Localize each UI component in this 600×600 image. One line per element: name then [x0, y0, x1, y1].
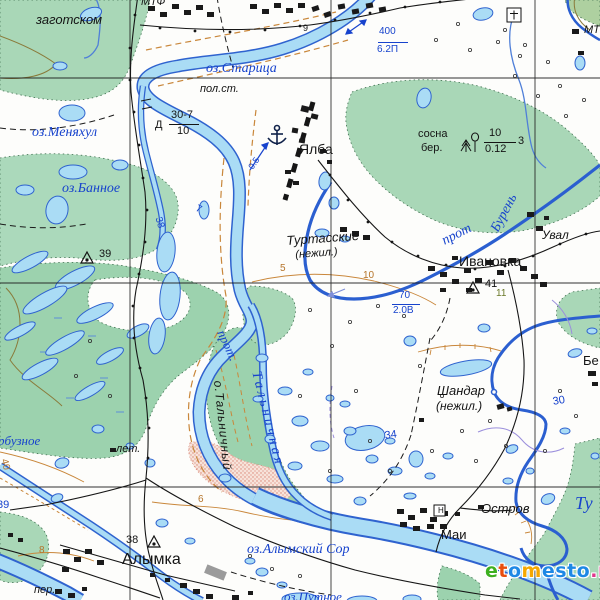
forest-top-left	[0, 0, 150, 101]
lake	[303, 369, 313, 375]
lake	[575, 56, 585, 70]
building	[68, 593, 75, 598]
bush-dot	[354, 389, 357, 392]
watermark-letter: o	[508, 560, 522, 582]
telegraph-pole-dot	[133, 337, 136, 340]
bush-dot	[518, 54, 521, 57]
lake	[425, 473, 435, 479]
building	[63, 549, 70, 554]
building	[440, 288, 446, 292]
bush-dot	[503, 28, 506, 31]
bush-dot	[348, 320, 351, 323]
building	[475, 278, 482, 283]
building	[8, 533, 13, 537]
bush-dot	[564, 114, 567, 117]
lake	[503, 478, 513, 484]
building	[408, 515, 415, 520]
green-bottom-center	[437, 566, 480, 600]
building	[232, 595, 239, 600]
lake	[315, 229, 329, 237]
lake	[219, 474, 231, 482]
bush-dot	[460, 429, 463, 432]
watermark-letter: o	[577, 560, 591, 582]
watermark-letter: e	[542, 560, 555, 582]
bush-dot	[270, 567, 273, 570]
telegraph-pole-dot	[391, 241, 394, 244]
building	[320, 149, 326, 153]
topographic-map[interactable]: оз.Старицаоз.Меняхулоз.БанноепротБуреньп…	[0, 0, 600, 600]
building	[486, 260, 493, 265]
building	[496, 403, 504, 410]
building	[531, 274, 538, 279]
building	[327, 160, 332, 164]
bush-dot	[298, 394, 301, 397]
map-canvas[interactable]	[0, 0, 600, 600]
building	[82, 587, 87, 591]
lake	[256, 568, 268, 576]
lake	[404, 493, 416, 499]
lake	[404, 336, 416, 346]
building	[509, 258, 516, 263]
building	[196, 5, 203, 10]
building	[428, 266, 435, 271]
watermark-letter: m	[522, 560, 542, 582]
telegraph-pole-dot	[138, 144, 141, 147]
building	[300, 105, 309, 113]
telegraph-pole-dot	[145, 397, 148, 400]
building	[110, 448, 116, 452]
building	[74, 557, 81, 562]
cemetery-icon	[507, 8, 521, 22]
bush-dot	[558, 84, 561, 87]
building	[452, 279, 459, 284]
lake	[591, 453, 599, 459]
building	[165, 578, 170, 582]
lake	[540, 492, 557, 507]
road-south	[144, 478, 163, 600]
telegraph-pole-dot	[264, 29, 267, 32]
bush-dot	[248, 554, 251, 557]
bush-dot	[376, 304, 379, 307]
building	[478, 505, 484, 509]
building	[340, 227, 347, 232]
telegraph-pole-dot	[585, 233, 588, 236]
building	[285, 170, 291, 174]
watermark-letter: e	[485, 560, 498, 582]
telegraph-pole-dot	[147, 457, 150, 460]
telegraph-pole-dot	[504, 265, 507, 268]
telegraph-pole-dot	[138, 273, 141, 276]
building	[413, 526, 420, 531]
building	[419, 418, 424, 422]
lake	[282, 593, 318, 600]
building	[293, 181, 299, 185]
building	[18, 538, 23, 542]
building	[464, 268, 471, 273]
lake	[92, 425, 104, 433]
building	[62, 567, 69, 572]
telegraph-pole-dot	[159, 27, 162, 30]
bush-dot	[536, 94, 539, 97]
bush-dot	[582, 98, 585, 101]
bush-dot	[546, 60, 549, 63]
telegraph-pole-dot	[559, 243, 562, 246]
lake	[327, 475, 343, 483]
telegraph-pole-dot	[445, 264, 448, 267]
lake	[278, 387, 292, 395]
lake	[54, 456, 70, 469]
lake	[340, 401, 350, 407]
telegraph-pole-dot	[369, 12, 372, 15]
lake	[245, 558, 255, 564]
bush-dot	[468, 48, 471, 51]
building	[592, 382, 598, 386]
watermark-letter: t	[567, 560, 577, 582]
building	[310, 113, 318, 120]
building	[540, 282, 547, 287]
telegraph-pole-dot	[129, 79, 132, 82]
building	[193, 589, 200, 594]
building	[274, 3, 281, 8]
lake	[326, 395, 334, 401]
building	[427, 524, 434, 529]
building	[204, 564, 227, 580]
building	[420, 508, 427, 513]
bush-dot	[488, 419, 491, 422]
lake	[199, 201, 209, 219]
bush-dot	[298, 574, 301, 577]
lake	[292, 416, 308, 426]
building	[148, 6, 155, 11]
building	[452, 256, 458, 260]
telegraph-pole-dot	[299, 25, 302, 28]
telegraph-pole-dot	[532, 255, 535, 258]
telegraph-pole-dot	[404, 6, 407, 9]
lake	[354, 497, 366, 505]
building	[286, 8, 293, 13]
lake	[256, 354, 268, 362]
building	[430, 517, 437, 522]
building	[97, 560, 104, 565]
telegraph-pole-dot	[132, 305, 135, 308]
telegraph-pole-dot	[439, 1, 442, 4]
building	[400, 522, 407, 527]
building	[172, 4, 179, 9]
bush-dot	[474, 459, 477, 462]
telegraph-pole-dot	[347, 199, 350, 202]
building	[292, 128, 299, 134]
intermittent-2	[478, 428, 564, 452]
bush-dot	[574, 414, 577, 417]
telegraph-pole-dot	[417, 255, 420, 258]
lake	[385, 438, 395, 444]
lake	[409, 451, 423, 467]
building	[206, 594, 213, 599]
bush-dot	[434, 38, 437, 41]
lake	[156, 519, 168, 527]
building	[578, 51, 584, 55]
telegraph-pole-dot	[133, 111, 136, 114]
h-box-icon	[434, 505, 445, 516]
telegraph-pole-dot	[474, 268, 477, 271]
building	[248, 591, 253, 595]
building	[298, 3, 305, 8]
building	[55, 589, 62, 594]
etomesto-watermark[interactable]: etomesto.ru	[485, 560, 600, 582]
building	[588, 371, 596, 376]
bush-dot	[440, 394, 443, 397]
telegraph-pole-dot	[334, 19, 337, 22]
building	[527, 212, 534, 217]
telegraph-pole-dot	[148, 427, 151, 430]
building	[184, 10, 191, 15]
building	[497, 270, 504, 275]
telegraph-pole-dot	[146, 209, 149, 212]
lake	[567, 347, 583, 358]
lake	[560, 428, 570, 434]
lake	[253, 396, 263, 402]
building	[85, 549, 92, 554]
watermark-letter: t	[498, 560, 508, 582]
lake	[53, 62, 67, 70]
building	[520, 266, 527, 271]
bush-dot	[523, 43, 526, 46]
lake	[59, 105, 85, 121]
building	[363, 235, 370, 240]
building	[311, 5, 319, 12]
lake	[288, 462, 302, 470]
flow-arrow	[250, 143, 268, 170]
lake	[265, 435, 275, 443]
lake	[388, 467, 402, 475]
forest-big-right	[346, 80, 600, 233]
telegraph-pole-dot	[194, 30, 197, 33]
building	[455, 512, 460, 516]
bush-dot	[430, 449, 433, 452]
lake	[587, 328, 597, 334]
telegraph-pole-dot	[129, 47, 132, 50]
lake	[526, 468, 534, 474]
lake	[329, 197, 339, 209]
bush-dot	[402, 314, 405, 317]
watermark-letter: s	[555, 560, 567, 582]
bush-dot	[418, 364, 421, 367]
yalba-street	[285, 102, 313, 200]
building	[352, 231, 359, 236]
building	[160, 12, 167, 17]
building	[536, 226, 543, 231]
lake	[311, 441, 329, 451]
lake	[403, 595, 421, 600]
lake	[347, 596, 377, 600]
telegraph-pole-dot	[134, 14, 137, 17]
lake	[439, 357, 493, 380]
lake	[472, 6, 494, 22]
lake	[366, 455, 378, 463]
lake	[16, 185, 34, 195]
building	[440, 272, 447, 277]
road-to-mai	[460, 508, 512, 511]
lake	[478, 324, 490, 332]
building	[397, 509, 404, 514]
telegraph-pole-dot	[144, 241, 147, 244]
watermark-letter: .	[590, 560, 598, 582]
telegraph-pole-dot	[367, 221, 370, 224]
building	[338, 3, 346, 9]
telegraph-pole-dot	[139, 367, 142, 370]
lake	[340, 236, 350, 242]
lake	[185, 538, 195, 544]
lake	[344, 427, 356, 435]
telegraph-pole-dot	[142, 177, 145, 180]
building	[180, 583, 187, 588]
building	[323, 11, 331, 18]
building	[440, 524, 447, 529]
anchor-icon	[268, 126, 286, 146]
building	[544, 216, 549, 220]
building	[150, 573, 155, 577]
building	[572, 29, 579, 34]
lake	[59, 165, 87, 179]
lake	[112, 160, 128, 170]
building	[250, 4, 257, 9]
building	[207, 12, 214, 17]
lake	[277, 582, 287, 588]
bush-dot	[496, 40, 499, 43]
bush-dot	[513, 74, 516, 77]
bush-dot	[558, 389, 561, 392]
lake	[443, 453, 453, 459]
building	[262, 9, 269, 14]
bush-dot	[308, 308, 311, 311]
bush-dot	[456, 22, 459, 25]
telegraph-pole-dot	[329, 174, 332, 177]
telegraph-pole-dot	[229, 31, 232, 34]
